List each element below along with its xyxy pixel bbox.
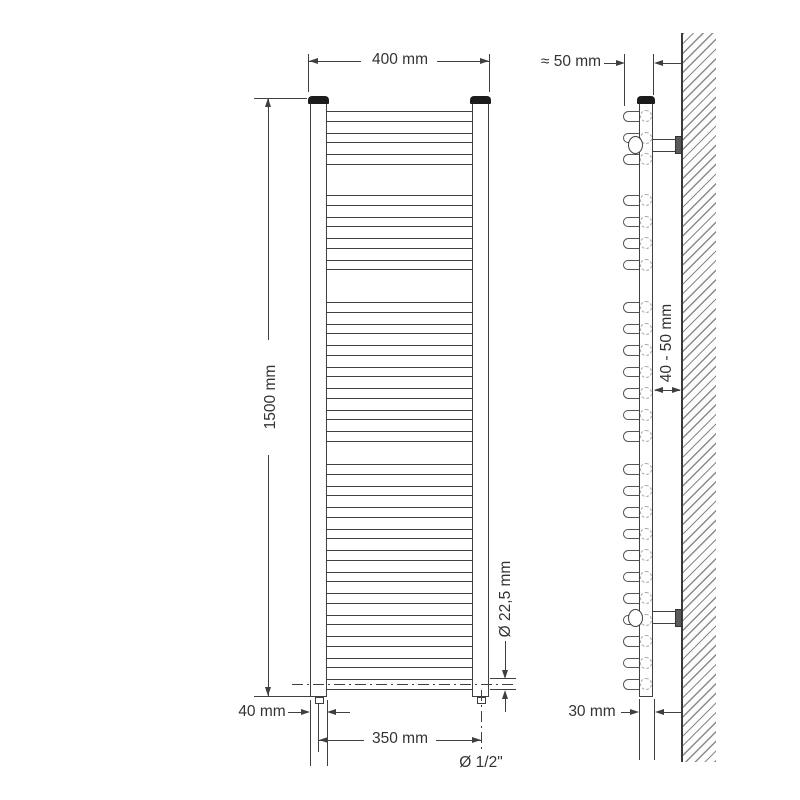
- dimension-line: [268, 98, 269, 340]
- height-dimension-label: 1500 mm: [263, 347, 279, 447]
- front-rung: [326, 658, 473, 669]
- front-rung: [326, 486, 473, 497]
- connection-spacing-label: 350 mm: [350, 731, 450, 747]
- front-left-connection-stub: [315, 697, 324, 704]
- front-rung: [326, 260, 473, 271]
- front-rung: [326, 324, 473, 335]
- side-tube: [639, 103, 653, 697]
- tube-diameter-label: 30 mm: [565, 704, 619, 720]
- side-rung-connection: [640, 635, 652, 647]
- front-rung: [326, 550, 473, 561]
- extension-line: [254, 98, 307, 99]
- arrowhead-down-icon: [265, 687, 271, 696]
- bracket-wall-plate: [675, 136, 682, 154]
- side-rung-connection: [640, 571, 652, 583]
- side-rung-connection: [640, 657, 652, 669]
- side-rung-connection: [640, 463, 652, 475]
- front-rung: [326, 529, 473, 540]
- front-rung: [326, 111, 473, 122]
- extension-line: [489, 54, 490, 92]
- side-rung-connection: [640, 194, 652, 206]
- arrowhead-right-icon: [480, 58, 489, 64]
- front-rung: [326, 464, 473, 475]
- side-rung-connection: [640, 528, 652, 540]
- front-rung: [326, 507, 473, 518]
- dimension-line: [288, 712, 301, 713]
- extension-line: [639, 699, 640, 760]
- side-rung-connection: [640, 216, 652, 228]
- arrowhead-up-icon: [265, 98, 271, 107]
- front-right-cap: [470, 96, 491, 104]
- arrowhead-right-icon: [672, 387, 681, 393]
- extension-line: [310, 700, 311, 766]
- arrowhead-left-icon: [327, 709, 336, 715]
- arrowhead-up-icon: [502, 690, 508, 699]
- side-tube-cap: [637, 96, 655, 104]
- connection-thread-label: Ø 1/2": [441, 755, 521, 771]
- front-rung: [326, 388, 473, 399]
- arrowhead-left-icon: [309, 58, 318, 64]
- arrowhead-down-icon: [502, 670, 508, 679]
- radiator-dimension-diagram: 400 mm 1500 mm Ø 22,5 mm 40 mm: [0, 0, 800, 800]
- wall-distance-label: 40 - 50 mm: [659, 303, 675, 383]
- arrowhead-right-icon: [630, 709, 639, 715]
- dimension-line: [268, 455, 269, 696]
- front-rung: [326, 615, 473, 626]
- front-rung: [326, 217, 473, 228]
- width-dimension-label: 400 mm: [350, 52, 450, 68]
- rung-diameter-label: Ø 22,5 mm: [498, 554, 514, 644]
- front-left-tube: [310, 103, 327, 697]
- extension-line: [327, 700, 328, 766]
- side-rung-connection: [640, 678, 652, 690]
- dimension-line: [336, 712, 350, 713]
- extension-line: [624, 54, 625, 106]
- bracket-arm: [652, 139, 676, 152]
- front-rung: [326, 572, 473, 583]
- side-rung-connection: [640, 344, 652, 356]
- side-rung-connection: [640, 110, 652, 122]
- side-rung-connection: [640, 153, 652, 165]
- bottom-rung-centerline: [292, 684, 516, 685]
- side-rung-connection: [640, 387, 652, 399]
- dimension-line: [505, 641, 506, 670]
- front-rung: [326, 367, 473, 378]
- front-rung: [326, 238, 473, 249]
- side-rung-connection: [640, 506, 652, 518]
- front-rung: [326, 636, 473, 647]
- extension-line: [254, 696, 310, 697]
- dimension-line: [604, 63, 616, 64]
- arrowhead-left-icon: [319, 737, 328, 743]
- side-rung-connection: [640, 409, 652, 421]
- front-rung: [326, 410, 473, 421]
- bracket-clamp: [628, 609, 643, 627]
- front-rung: [326, 154, 473, 165]
- depth-label: ≈ 50 mm: [540, 54, 602, 70]
- bracket-wall-plate: [675, 609, 682, 627]
- front-rung: [326, 195, 473, 206]
- arrowhead-left-icon: [654, 60, 663, 66]
- side-rung-connection: [640, 485, 652, 497]
- side-rung-connection: [640, 592, 652, 604]
- front-right-tube: [472, 103, 489, 697]
- dimension-line: [663, 63, 681, 64]
- side-rung-connection: [640, 237, 652, 249]
- side-rung-connection: [640, 259, 652, 271]
- extension-line: [318, 703, 319, 752]
- wall-hatched: [681, 33, 716, 762]
- bracket-arm: [652, 611, 676, 624]
- dimension-line: [505, 699, 506, 712]
- side-rung-connection: [640, 430, 652, 442]
- side-rung-connection: [640, 323, 652, 335]
- front-rung: [326, 431, 473, 442]
- front-rung: [326, 593, 473, 604]
- front-rung: [326, 302, 473, 313]
- edge-offset-label: 40 mm: [235, 704, 289, 720]
- arrowhead-left-icon: [654, 387, 663, 393]
- side-rung-connection: [640, 301, 652, 313]
- connection-centerline: [481, 690, 482, 753]
- bracket-clamp: [628, 136, 643, 154]
- arrowhead-right-icon: [472, 737, 481, 743]
- front-left-cap: [308, 96, 329, 104]
- side-rung-connection: [640, 549, 652, 561]
- arrowhead-left-icon: [655, 709, 664, 715]
- front-rung: [326, 133, 473, 144]
- arrowhead-right-icon: [301, 709, 310, 715]
- front-rung: [326, 345, 473, 356]
- side-rung-connection: [640, 366, 652, 378]
- dimension-line: [664, 712, 681, 713]
